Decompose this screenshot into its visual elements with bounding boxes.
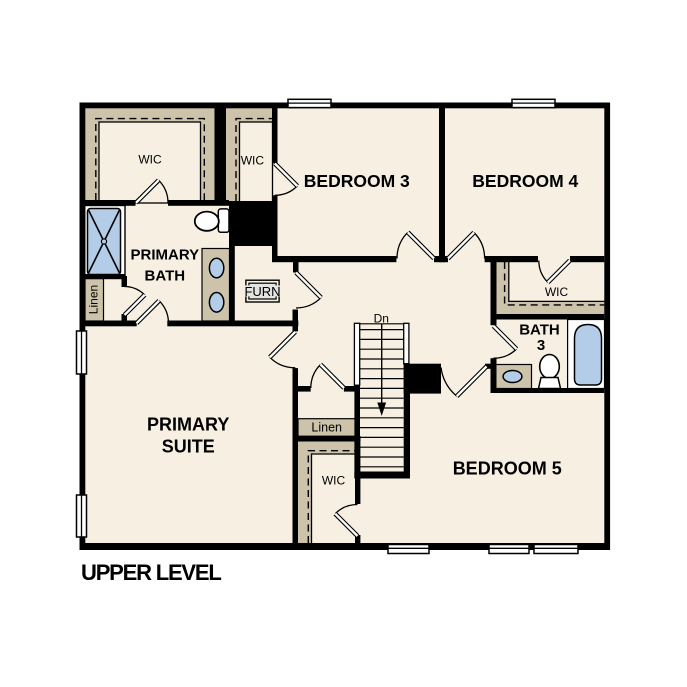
svg-text:UPPER LEVEL: UPPER LEVEL [81,560,221,585]
svg-text:PRIMARY: PRIMARY [130,247,199,264]
svg-text:WIC: WIC [322,474,346,488]
svg-text:SUITE: SUITE [162,436,215,456]
svg-text:WIC: WIC [545,285,569,299]
svg-text:Linen: Linen [87,285,101,314]
svg-text:PRIMARY: PRIMARY [147,415,229,435]
svg-text:3: 3 [537,337,545,354]
svg-text:WIC: WIC [138,153,162,167]
svg-text:BEDROOM 5: BEDROOM 5 [453,459,562,479]
svg-text:BEDROOM 4: BEDROOM 4 [472,171,578,191]
svg-text:Linen: Linen [311,421,342,435]
svg-text:FURN: FURN [244,284,280,299]
svg-text:WIC: WIC [241,154,265,168]
svg-text:Dn: Dn [374,311,389,325]
svg-text:BEDROOM 3: BEDROOM 3 [304,171,410,191]
svg-text:BATH: BATH [145,268,186,285]
